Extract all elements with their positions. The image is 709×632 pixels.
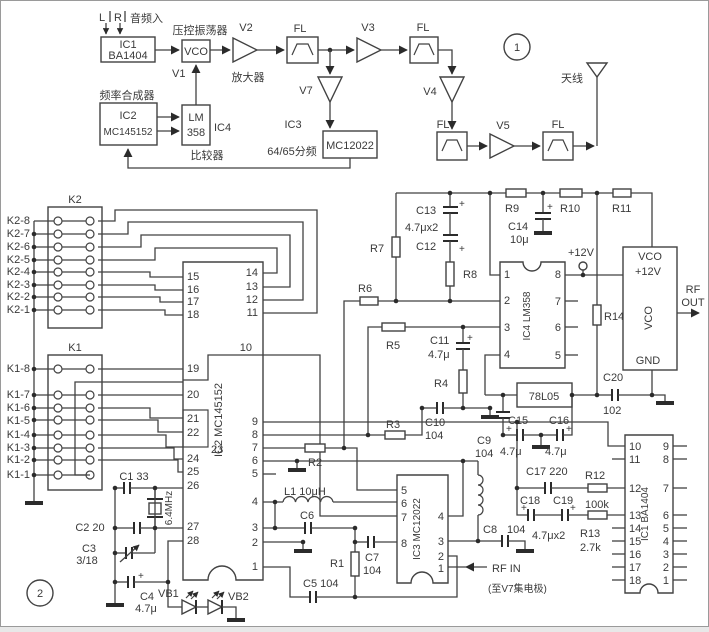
svg-text:R13: R13: [580, 528, 600, 540]
svg-text:3: 3: [504, 322, 510, 334]
svg-text:+12V: +12V: [568, 247, 595, 259]
svg-text:3/18: 3/18: [76, 555, 97, 567]
svg-text:1: 1: [252, 561, 258, 573]
svg-text:13: 13: [246, 281, 258, 293]
block-ic1-ba1404: IC1 BA1404: [101, 37, 155, 62]
svg-text:5: 5: [401, 485, 407, 497]
svg-text:C10: C10: [425, 417, 445, 429]
svg-text:13: 13: [629, 510, 641, 522]
svg-text:4.7μ: 4.7μ: [500, 446, 522, 458]
svg-text:5: 5: [252, 468, 258, 480]
svg-text:R: R: [114, 12, 122, 24]
svg-text:天线: 天线: [561, 71, 583, 85]
svg-text:VCO: VCO: [638, 251, 662, 263]
svg-text:C1 33: C1 33: [119, 471, 148, 483]
svg-text:18: 18: [629, 575, 641, 587]
svg-text:C17 220: C17 220: [526, 466, 568, 478]
svg-text:+: +: [138, 571, 144, 582]
svg-text:C16: C16: [549, 415, 569, 427]
svg-text:FL: FL: [437, 119, 450, 131]
svg-text:RF: RF: [686, 284, 701, 296]
svg-text:C3: C3: [82, 543, 96, 555]
svg-text:IC3: IC3: [284, 119, 301, 131]
svg-text:比较器: 比较器: [191, 148, 224, 162]
svg-text:K1-6: K1-6: [7, 402, 30, 414]
svg-text:2: 2: [504, 295, 510, 307]
svg-text:22: 22: [187, 427, 199, 439]
svg-text:R5: R5: [386, 340, 400, 352]
svg-text:V3: V3: [361, 22, 374, 34]
svg-text:IC1 BA1404: IC1 BA1404: [640, 487, 651, 541]
svg-text:R7: R7: [370, 243, 384, 255]
svg-text:V4: V4: [423, 86, 436, 98]
svg-text:C20: C20: [603, 372, 623, 384]
svg-text:R11: R11: [612, 203, 631, 215]
svg-text:R2: R2: [308, 457, 322, 469]
svg-text:11: 11: [247, 307, 258, 319]
svg-text:放大器: 放大器: [232, 70, 265, 84]
svg-text:C5 104: C5 104: [303, 578, 338, 590]
svg-text:IC2: IC2: [119, 110, 136, 122]
svg-text:17: 17: [629, 562, 641, 574]
svg-text:K2-6: K2-6: [7, 241, 30, 253]
svg-text:64/65分频: 64/65分频: [267, 144, 317, 158]
svg-text:18: 18: [187, 309, 199, 321]
svg-text:K2-8: K2-8: [7, 215, 30, 227]
svg-text:频率合成器: 频率合成器: [100, 88, 155, 102]
svg-text:K2-4: K2-4: [7, 266, 30, 278]
svg-text:BA1404: BA1404: [108, 50, 147, 62]
svg-text:C7: C7: [365, 552, 379, 564]
svg-text:FL: FL: [552, 119, 565, 131]
svg-text:10: 10: [629, 441, 641, 453]
svg-text:L1 10μH: L1 10μH: [284, 486, 326, 498]
svg-text:K1-2: K1-2: [7, 454, 30, 466]
svg-text:C14: C14: [508, 221, 528, 233]
svg-text:LM: LM: [188, 112, 203, 124]
svg-text:104: 104: [475, 448, 493, 460]
svg-text:压控振荡器: 压控振荡器: [173, 23, 228, 37]
svg-text:7: 7: [555, 296, 561, 308]
svg-text:FL: FL: [417, 22, 430, 34]
svg-text:14: 14: [629, 523, 641, 535]
svg-text:+: +: [547, 202, 553, 213]
svg-text:L: L: [99, 12, 105, 24]
schematic-page: L R 音频入 IC1 BA1404 压控振荡器 VCO V1 V2 放大器 F…: [0, 0, 709, 627]
svg-text:R12: R12: [585, 470, 605, 482]
svg-text:11: 11: [629, 454, 640, 466]
svg-text:R10: R10: [560, 203, 580, 215]
svg-text:2: 2: [37, 588, 43, 600]
svg-text:K2-3: K2-3: [7, 279, 30, 291]
svg-text:K1-4: K1-4: [7, 429, 30, 441]
svg-text:104: 104: [507, 524, 525, 536]
svg-text:VCO: VCO: [643, 306, 655, 330]
svg-text:102: 102: [603, 405, 621, 417]
svg-text:K1-5: K1-5: [7, 415, 30, 427]
svg-text:+12V: +12V: [635, 266, 662, 278]
svg-text:+: +: [459, 199, 465, 210]
svg-text:1: 1: [504, 269, 510, 281]
svg-text:8: 8: [401, 538, 407, 550]
svg-text:10: 10: [240, 342, 252, 354]
svg-text:25: 25: [187, 466, 199, 478]
svg-text:6.4MHz: 6.4MHz: [164, 491, 175, 525]
svg-text:15: 15: [629, 536, 641, 548]
svg-text:7: 7: [401, 512, 407, 524]
svg-text:8: 8: [252, 429, 258, 441]
svg-text:6: 6: [663, 510, 669, 522]
svg-text:358: 358: [187, 127, 205, 139]
svg-text:VB1: VB1: [158, 588, 179, 600]
svg-text:100k: 100k: [585, 499, 609, 511]
svg-text:V2: V2: [239, 22, 252, 34]
svg-text:9: 9: [252, 416, 258, 428]
svg-text:C12: C12: [416, 241, 436, 253]
svg-text:C13: C13: [416, 205, 436, 217]
svg-text:GND: GND: [636, 355, 661, 367]
svg-text:4.7μx2: 4.7μx2: [532, 530, 565, 542]
block-vco: VCO: [182, 40, 210, 62]
svg-text:K1-1: K1-1: [7, 469, 30, 481]
svg-text:21: 21: [187, 413, 199, 425]
svg-text:5: 5: [663, 523, 669, 535]
svg-text:IC3 MC12022: IC3 MC12022: [412, 498, 423, 560]
svg-text:K2-1: K2-1: [7, 304, 30, 316]
svg-text:4: 4: [504, 349, 510, 361]
svg-text:14: 14: [246, 267, 258, 279]
svg-text:C8: C8: [483, 524, 497, 536]
svg-text:R8: R8: [463, 269, 477, 281]
svg-text:2: 2: [438, 551, 444, 563]
svg-text:3: 3: [252, 522, 258, 534]
svg-text:4.7μ: 4.7μ: [545, 446, 567, 458]
svg-text:16: 16: [629, 549, 641, 561]
svg-text:MC12022: MC12022: [326, 140, 374, 152]
svg-text:7: 7: [252, 442, 258, 454]
svg-text:C2 20: C2 20: [75, 522, 104, 534]
svg-text:R6: R6: [358, 283, 372, 295]
svg-text:104: 104: [363, 565, 381, 577]
svg-text:VCO: VCO: [184, 46, 208, 58]
svg-text:4.7μx2: 4.7μx2: [405, 222, 438, 234]
svg-text:C11: C11: [430, 335, 449, 347]
svg-text:IC4: IC4: [214, 122, 231, 134]
svg-text:2.7k: 2.7k: [580, 542, 601, 554]
svg-text:1: 1: [514, 42, 520, 54]
svg-text:R9: R9: [505, 203, 519, 215]
svg-text:7: 7: [663, 483, 669, 495]
svg-text:27: 27: [187, 521, 199, 533]
svg-text:IC4 LM358: IC4 LM358: [522, 291, 533, 340]
svg-text:104: 104: [425, 430, 443, 442]
svg-text:(至V7集电极): (至V7集电极): [488, 582, 547, 595]
svg-text:6: 6: [401, 498, 407, 510]
svg-text:5: 5: [555, 350, 561, 362]
svg-text:3: 3: [438, 536, 444, 548]
svg-text:2: 2: [252, 537, 258, 549]
svg-text:12: 12: [629, 483, 641, 495]
svg-text:C18: C18: [520, 495, 540, 507]
svg-text:K1-7: K1-7: [7, 389, 30, 401]
svg-text:26: 26: [187, 480, 199, 492]
svg-text:OUT: OUT: [681, 297, 705, 309]
svg-text:RF IN: RF IN: [492, 563, 521, 575]
svg-text:音频入: 音频入: [130, 11, 163, 25]
svg-text:2: 2: [663, 562, 669, 574]
svg-text:1: 1: [438, 563, 444, 575]
svg-text:6: 6: [252, 455, 258, 467]
svg-text:K2-2: K2-2: [7, 291, 30, 303]
svg-text:24: 24: [187, 453, 199, 465]
ic3-mc12022: IC3 MC12022 5 6 7 8 4 3 2 1: [397, 475, 448, 583]
svg-text:R4: R4: [434, 378, 448, 390]
svg-text:C4: C4: [140, 591, 154, 603]
svg-text:C9: C9: [477, 435, 491, 447]
svg-text:28: 28: [187, 535, 199, 547]
svg-text:8: 8: [555, 269, 561, 281]
svg-text:V7: V7: [299, 85, 312, 97]
svg-text:8: 8: [663, 454, 669, 466]
svg-text:6: 6: [555, 322, 561, 334]
svg-text:12: 12: [246, 294, 258, 306]
svg-text:MC145152: MC145152: [104, 127, 153, 138]
section-2-badge: 2: [27, 580, 53, 606]
svg-text:VB2: VB2: [228, 591, 249, 603]
svg-text:1: 1: [663, 575, 669, 587]
svg-text:FL: FL: [294, 23, 307, 35]
svg-text:K1-8: K1-8: [7, 363, 30, 375]
svg-text:16: 16: [187, 284, 199, 296]
section-1-badge: 1: [504, 34, 530, 60]
svg-text:19: 19: [187, 363, 199, 375]
ic2-mc145152: IC2 MC145152 15 16 17 18 19 20 21 22 23 …: [183, 262, 263, 580]
svg-text:4: 4: [252, 496, 258, 508]
svg-text:20: 20: [187, 389, 199, 401]
svg-text:V5: V5: [496, 120, 509, 132]
svg-text:C19: C19: [553, 495, 573, 507]
svg-text:V1: V1: [172, 68, 185, 80]
svg-text:K2-7: K2-7: [7, 228, 30, 240]
svg-text:C6: C6: [300, 510, 314, 522]
svg-text:K2-5: K2-5: [7, 254, 30, 266]
svg-text:9: 9: [663, 441, 669, 453]
svg-text:78L05: 78L05: [529, 391, 560, 403]
svg-text:17: 17: [187, 296, 199, 308]
svg-text:K1: K1: [68, 342, 81, 354]
svg-text:4: 4: [438, 511, 444, 523]
svg-text:+: +: [467, 333, 473, 344]
svg-text:10μ: 10μ: [510, 234, 529, 246]
circuit-svg: L R 音频入 IC1 BA1404 压控振荡器 VCO V1 V2 放大器 F…: [0, 0, 709, 627]
svg-text:3: 3: [663, 549, 669, 561]
svg-text:4.7μ: 4.7μ: [135, 603, 157, 615]
svg-text:15: 15: [187, 271, 199, 283]
svg-text:R3: R3: [386, 419, 400, 431]
svg-text:23: 23: [211, 444, 223, 456]
svg-text:R1: R1: [330, 558, 344, 570]
svg-text:+: +: [459, 244, 465, 255]
svg-text:K1-3: K1-3: [7, 442, 30, 454]
svg-text:R14: R14: [604, 311, 624, 323]
svg-text:4.7μ: 4.7μ: [428, 349, 450, 361]
block-ic2-mc145152: IC2 MC145152: [100, 103, 157, 145]
svg-text:4: 4: [663, 536, 669, 548]
svg-text:K2: K2: [68, 194, 81, 206]
